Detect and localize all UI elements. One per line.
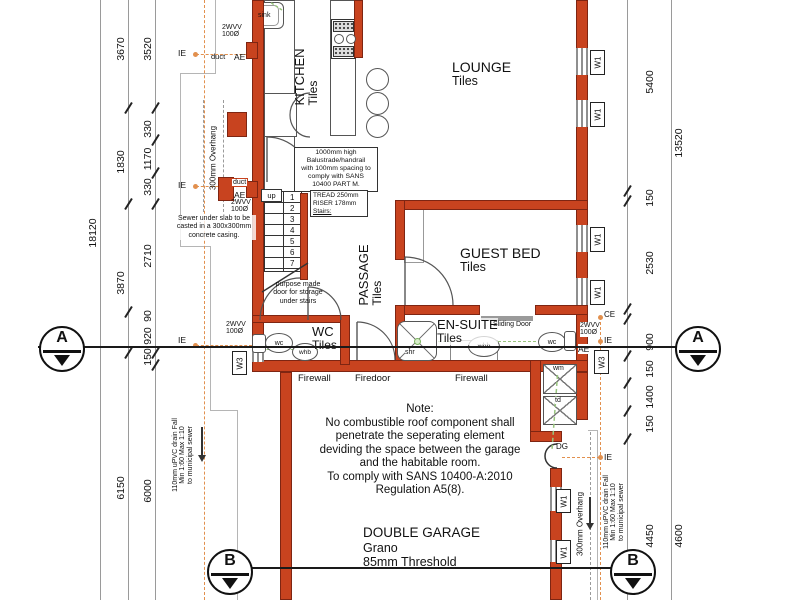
stair-number: 7 — [290, 259, 294, 268]
room-label-lounge: LOUNGE Tiles — [452, 60, 511, 89]
w1-label: W1 — [593, 109, 602, 121]
section-marker-a-left: A — [39, 326, 85, 372]
window-mark-w1: W1 — [590, 50, 605, 75]
dim: 330 — [142, 178, 154, 196]
dim: 6000 — [142, 479, 154, 502]
window-mark-w3: W3 — [594, 350, 609, 374]
vent-label: 2WVV100Ø — [222, 24, 242, 39]
room-label-garage: DOUBLE GARAGE Grano 85mm Threshold — [363, 525, 480, 569]
duct-label: duct — [211, 52, 225, 61]
duct-label: duct — [231, 178, 248, 187]
section-letter: A — [41, 328, 83, 348]
section-letter: B — [209, 551, 251, 571]
w1-label: W1 — [559, 495, 568, 507]
w3-label: W3 — [597, 356, 606, 368]
sink-label: sink — [258, 12, 270, 19]
window-mark-w1: W1 — [590, 102, 605, 127]
section-marker-a-right: A — [675, 326, 721, 372]
stair-up-box: up — [261, 189, 282, 202]
vent-label: 2WVV100Ø — [580, 322, 600, 337]
firewall-label: Firewall — [455, 373, 488, 384]
vent-label: 2WVV100Ø — [231, 199, 251, 214]
stair-spec-note: TREAD 250mmRISER 178mmStairs: — [310, 190, 368, 217]
drain-note-left: 110mm uPVC drain FallMin 1:60 Max 1:10to… — [172, 418, 194, 492]
dim: 1170 — [142, 148, 154, 171]
dim-total-left: 18120 — [87, 218, 99, 247]
stair-number: 1 — [290, 193, 294, 202]
dim: 900 — [644, 333, 656, 351]
vent-label: 2WVV100Ø — [226, 321, 246, 336]
dim: 3670 — [115, 37, 127, 60]
garage-note: Note:No combustible roof component shall… — [285, 403, 555, 498]
tumble-dryer-label: td — [555, 397, 561, 404]
ce-label: CE — [604, 310, 615, 319]
shower-label: shr — [405, 349, 415, 356]
window-mark-w1: W1 — [556, 540, 571, 564]
w1-label: W1 — [559, 546, 568, 558]
stair-number: 5 — [290, 237, 294, 246]
window-mark-w1: W1 — [590, 280, 605, 305]
ae-label: AE — [234, 52, 245, 62]
door-swing-layer — [0, 0, 800, 600]
section-marker-b-left: B — [207, 549, 253, 595]
sliding-door-label: Sliding Door — [493, 321, 531, 328]
w1-label: W1 — [593, 287, 602, 299]
dim: 1830 — [115, 150, 127, 173]
room-label-kitchen: KITCHEN Tiles — [293, 48, 319, 105]
dim: 150 — [644, 189, 656, 207]
stair-number: 6 — [290, 248, 294, 257]
room-label-wc: WC Tiles — [312, 325, 337, 352]
section-letter: A — [677, 328, 719, 348]
section-letter: B — [612, 551, 654, 571]
dim: 4450 — [644, 524, 656, 547]
w3-label: W3 — [235, 357, 244, 369]
dim: 150 — [644, 360, 656, 378]
dim: 2530 — [644, 251, 656, 274]
overhang-label: 300mm Overhang — [576, 492, 585, 556]
stair-number: 4 — [290, 226, 294, 235]
dim: 6150 — [115, 476, 127, 499]
dim: 2710 — [142, 244, 154, 267]
balustrade-note: 1000mm highBalustrade/handrail with 100m… — [294, 147, 378, 192]
floor-plan: 18120 3670 1830 3870 6150 3520 330 1170 … — [0, 0, 800, 600]
dim: 920 — [142, 327, 154, 345]
section-line-b — [226, 567, 652, 569]
drain-note-right: 110mm uPVC drain FallMin 1:60 Max 1:10to… — [603, 475, 625, 549]
dg-label: DG — [556, 442, 568, 451]
dim: 150 — [644, 415, 656, 433]
window-mark-w1: W1 — [590, 227, 605, 252]
stair-number: 2 — [290, 204, 294, 213]
firedoor-label: Firedoor — [355, 373, 390, 384]
dim: 90 — [142, 310, 154, 322]
room-label-passage: PASSAGE Tiles — [357, 244, 383, 305]
room-label-guestbed: GUEST BED Tiles — [460, 246, 541, 275]
section-line-a — [38, 346, 720, 348]
dim: 1400 — [644, 385, 656, 408]
room-label-ensuite: EN-SUITE Tiles — [437, 318, 498, 345]
window-mark-w3: W3 — [232, 351, 247, 375]
ie-label: IE — [178, 180, 186, 190]
dim: 3520 — [142, 37, 154, 60]
washing-machine-label: wm — [553, 365, 564, 372]
dim: 13520 — [673, 128, 685, 157]
ie-label: IE — [604, 335, 612, 345]
storage-door-note: purpose madedoor for storageunder stairs — [261, 281, 335, 306]
sewer-slab-note: Sewer under slab to becasted in a 300x30… — [172, 215, 256, 240]
dim: 4600 — [673, 524, 685, 547]
firewall-label: Firewall — [298, 373, 331, 384]
ie-label: IE — [178, 48, 186, 58]
dim: 5400 — [644, 70, 656, 93]
ie-label: IE — [604, 452, 612, 462]
dim: 330 — [142, 120, 154, 138]
w1-label: W1 — [593, 234, 602, 246]
ie-label: IE — [178, 335, 186, 345]
overhang-label: 300mm Overhang — [209, 126, 218, 190]
dim: 3870 — [115, 271, 127, 294]
section-marker-b-right: B — [610, 549, 656, 595]
window-mark-w1: W1 — [556, 489, 571, 513]
w1-label: W1 — [593, 57, 602, 69]
stair-number: 3 — [290, 215, 294, 224]
